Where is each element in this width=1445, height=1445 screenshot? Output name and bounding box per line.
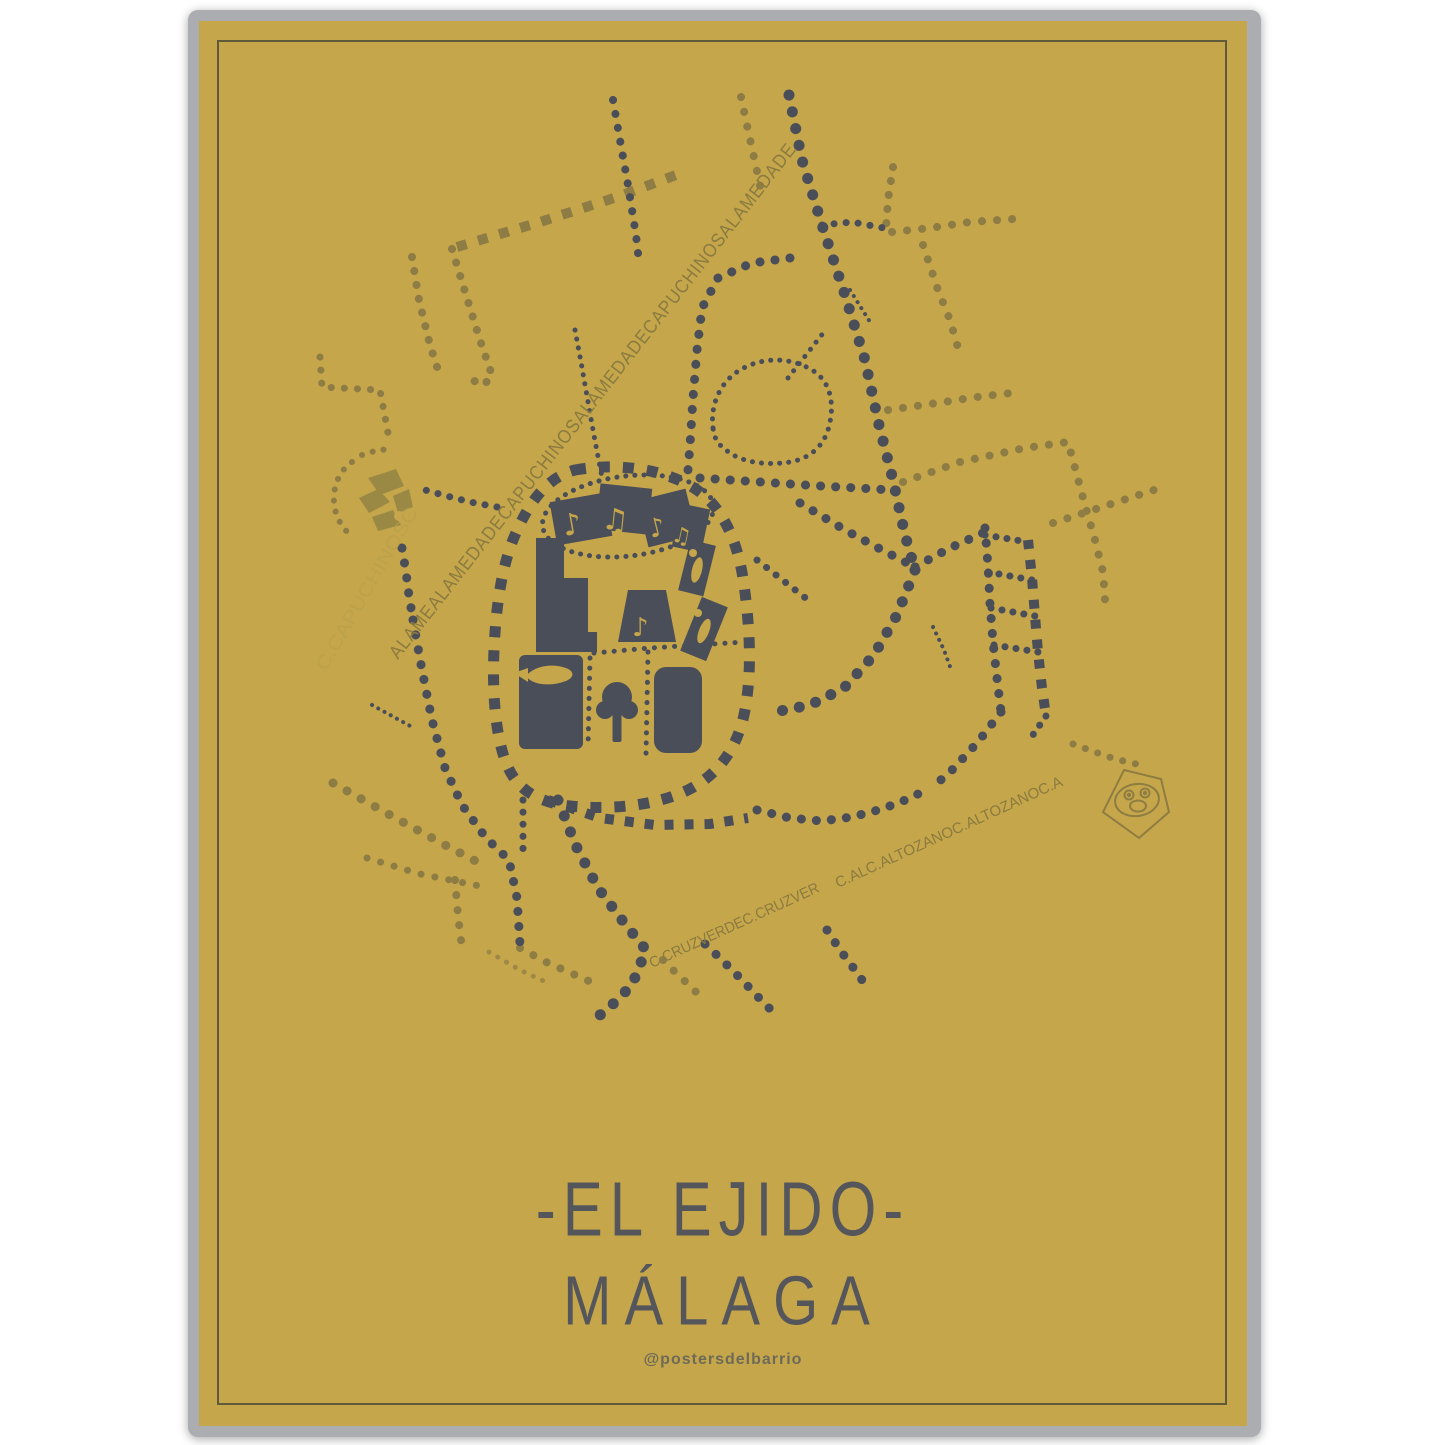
poster-title-city: MÁLAGA — [199, 1261, 1247, 1341]
poster-mockup: -EL EJIDO- MÁLAGA @postersdelbarrio — [0, 0, 1445, 1445]
poster-canvas: -EL EJIDO- MÁLAGA @postersdelbarrio — [199, 21, 1247, 1426]
poster-frame: -EL EJIDO- MÁLAGA @postersdelbarrio — [188, 10, 1261, 1437]
poster-credit: @postersdelbarrio — [199, 1351, 1247, 1369]
poster-title-neighborhood: -EL EJIDO- — [199, 1165, 1247, 1253]
